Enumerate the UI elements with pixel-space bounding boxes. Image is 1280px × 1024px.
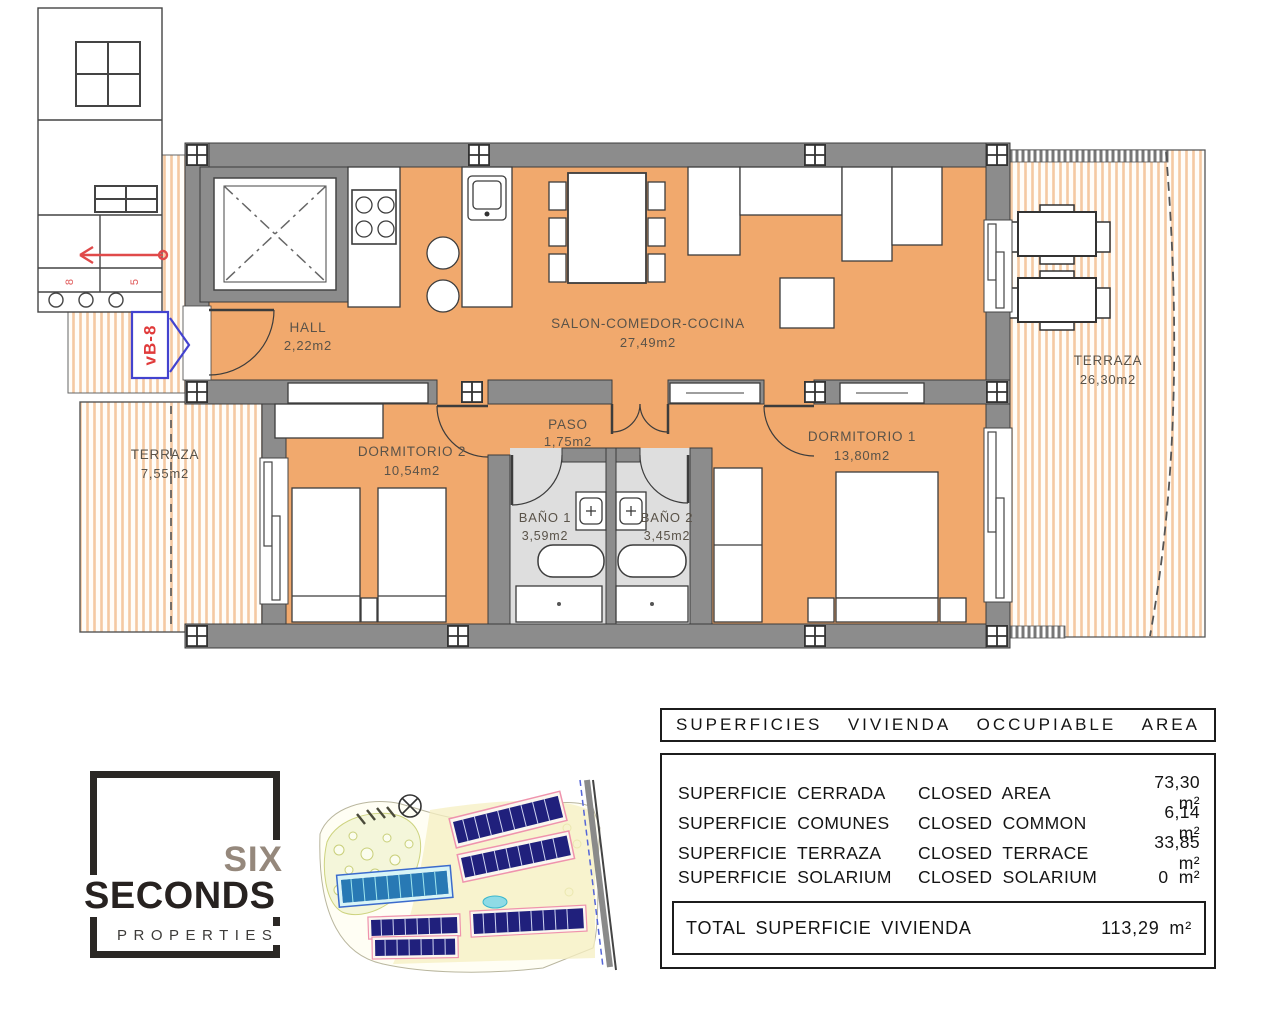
page: 8 5 vB-8 HALL 2,22m2 SALON-COMEDOR-COCIN…: [0, 0, 1280, 1024]
stool: [427, 237, 459, 269]
row-label-en: CLOSED SOLARIUM: [918, 867, 1136, 888]
room-area-paso: 1,75m2: [544, 434, 592, 449]
room-label-terraza-main: TERRAZA: [1074, 353, 1143, 368]
table-row: SUPERFICIE SOLARIUM CLOSED SOLARIUM 0 m²: [678, 862, 1202, 892]
room-label-bano2: BAÑO 2: [641, 510, 693, 525]
row-label-es: SUPERFICIE CERRADA: [678, 783, 918, 804]
core-window: [95, 186, 157, 212]
room-label-dormitorio1: DORMITORIO 1: [808, 429, 916, 444]
salon-terrace-window: [984, 220, 1012, 312]
table-row: SUPERFICIE CERRADA CLOSED AREA 73,30 m²: [678, 772, 1202, 802]
room-area-bano2: 3,45m2: [644, 529, 691, 543]
room-label-paso: PASO: [548, 417, 588, 432]
nightstand: [361, 598, 377, 622]
header-word: SUPERFICIES: [676, 715, 822, 735]
building-row: [470, 905, 587, 937]
total-row: TOTAL SUPERFICIE VIVIENDA 113,29 m²: [672, 901, 1206, 955]
table-row: SUPERFICIE COMUNES CLOSED COMMON 6,14 m²: [678, 802, 1202, 832]
room-area-dormitorio1: 13,80m2: [834, 448, 890, 463]
room-area-terraza-side: 7,55m2: [141, 466, 189, 481]
bedroom1-bed: [714, 468, 966, 622]
room-label-bano1: BAÑO 1: [519, 510, 571, 525]
total-label: TOTAL SUPERFICIE VIVIENDA: [686, 918, 972, 939]
row-label-en: CLOSED AREA: [918, 783, 1136, 804]
header-word: AREA: [1142, 715, 1200, 735]
terrace-side: [80, 402, 262, 632]
table-row: SUPERFICIE TERRAZA CLOSED TERRACE 33,85 …: [678, 832, 1202, 862]
communal-core: [38, 8, 167, 312]
nightstand: [808, 598, 834, 622]
stove: [352, 190, 396, 244]
terrace-main: [1004, 150, 1205, 638]
bathroom-vanities: [516, 586, 688, 622]
coffee-table: [780, 278, 834, 328]
site-plan-map: [305, 772, 617, 978]
dining-table: [549, 173, 665, 283]
total-value: 113,29 m²: [1101, 918, 1192, 939]
stair-mark: 5: [129, 279, 141, 285]
room-label-terraza-side: TERRAZA: [131, 447, 200, 462]
logo-word-six: SIX: [214, 840, 285, 879]
header-word: VIVIENDA: [848, 715, 951, 735]
nightstand: [940, 598, 966, 622]
room-label-dormitorio2: DORMITORIO 2: [358, 444, 466, 459]
room-area-bano1: 3,59m2: [522, 529, 569, 543]
six-seconds-logo: SIX SECONDS PROPERTIES: [90, 771, 280, 958]
logo-word-seconds: SECONDS: [78, 875, 281, 917]
room-area-dormitorio2: 10,54m2: [384, 463, 440, 478]
row-value: 0 m²: [1136, 867, 1202, 888]
pool: [483, 896, 507, 908]
core-window: [76, 42, 140, 106]
terrace-table-set: [1004, 205, 1110, 264]
room-label-salon: SALON-COMEDOR-COCINA: [551, 316, 745, 331]
unit-tag-label: vB-8: [141, 325, 160, 366]
room-area-hall: 2,22m2: [284, 338, 332, 353]
terrace-table-set: [1004, 271, 1110, 330]
room-area-terraza-main: 26,30m2: [1080, 372, 1136, 387]
row-label-es: SUPERFICIE SOLARIUM: [678, 867, 918, 888]
area-table: SUPERFICIES VIVIENDA OCCUPIABLE AREA SUP…: [660, 708, 1216, 969]
row-label-es: SUPERFICIE TERRAZA: [678, 843, 918, 864]
stair-mark: 8: [64, 279, 76, 285]
row-label-es: SUPERFICIE COMUNES: [678, 813, 918, 834]
bedroom2-window: [260, 458, 288, 604]
floor-plan: 8 5 vB-8 HALL 2,22m2 SALON-COMEDOR-COCIN…: [0, 0, 1280, 690]
stool: [427, 280, 459, 312]
elevator-shaft: [214, 178, 336, 290]
header-word: OCCUPIABLE: [977, 715, 1117, 735]
logo-word-properties: PROPERTIES: [113, 926, 282, 945]
kitchen-sink: [468, 176, 506, 220]
bedroom1-terrace-window: [984, 428, 1012, 602]
room-area-salon: 27,49m2: [620, 335, 676, 350]
row-label-en: CLOSED TERRACE: [918, 843, 1136, 864]
area-table-body: SUPERFICIE CERRADA CLOSED AREA 73,30 m² …: [660, 753, 1216, 969]
row-label-en: CLOSED COMMON: [918, 813, 1136, 834]
room-label-hall: HALL: [290, 320, 327, 335]
pergola-hatch: [1010, 150, 1168, 162]
building-row: [372, 936, 458, 959]
area-table-header: SUPERFICIES VIVIENDA OCCUPIABLE AREA: [660, 708, 1216, 742]
